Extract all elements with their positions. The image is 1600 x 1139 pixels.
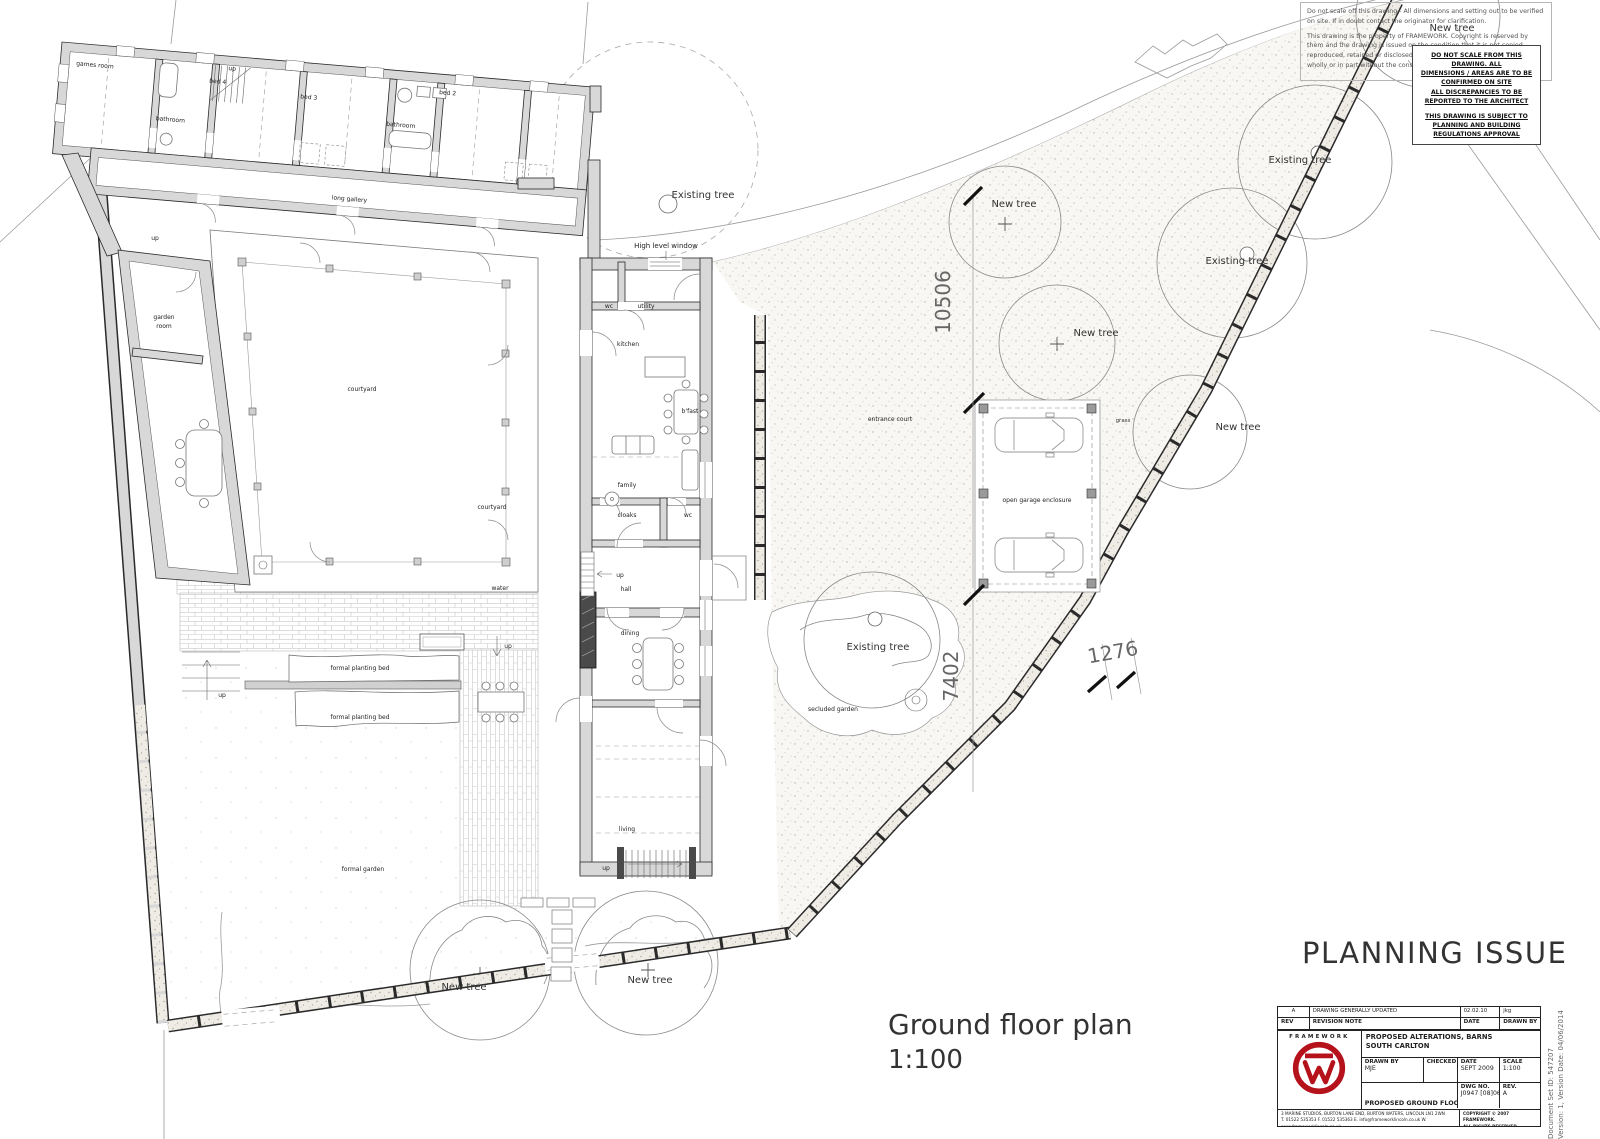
framework-logo-icon (1291, 1040, 1347, 1096)
rev-value: A (1503, 1090, 1537, 1097)
label-new-tree: New tree (991, 199, 1036, 210)
label-courtyard: courtyard (478, 504, 507, 511)
label-living: living (619, 826, 635, 833)
rev-header: REV (1278, 1018, 1310, 1029)
label-bed3: bed 3 (300, 93, 318, 101)
label-up: up (616, 572, 624, 579)
document-version: Version: 1, Version Date: 04/06/2014 (1556, 1010, 1566, 1139)
label-new-tree: New tree (627, 975, 672, 986)
label-kitchen: kitchen (617, 341, 639, 348)
label-dining: dining (621, 630, 640, 637)
label-family: family (618, 482, 637, 489)
warning-line: ALL DISCREPANCIES TO BE REPORTED TO THE … (1417, 88, 1536, 106)
document-set-id: Document Set ID: 547207 (1546, 1010, 1556, 1139)
project-title-line1: PROPOSED ALTERATIONS, BARNS (1366, 1033, 1536, 1042)
by-header: DRAWN BY (1500, 1018, 1540, 1029)
label-formal-planting-bed: formal planting bed (330, 714, 389, 721)
label-high-level-window: High level window (634, 242, 698, 250)
label-new-tree: New tree (441, 982, 486, 993)
label-utility: utility (637, 303, 655, 310)
label-grass: grass (1116, 418, 1131, 424)
label-entrance-court: entrance court (868, 416, 913, 423)
drawing-caption: Ground floor plan 1:100 (888, 1008, 1133, 1075)
date-value: SEPT 2009 (1461, 1065, 1496, 1072)
label-garden-room: room (156, 323, 172, 330)
drawn-by-value: MJE (1365, 1065, 1420, 1072)
drawing-title: PROPOSED GROUND FLOOR PLAN (1365, 1099, 1458, 1107)
address-line2: T. 01522 535353 F. 01522 535363 E. info@… (1281, 1117, 1456, 1126)
scale-value: 1:100 (1503, 1065, 1537, 1072)
copyright-line2: ALL RIGHTS RESERVED. (1463, 1124, 1537, 1126)
label-bed2: bed 2 (439, 89, 457, 97)
rev-entry-by: jkg (1500, 1007, 1540, 1017)
label-formal-garden: formal garden (342, 866, 385, 873)
label-up: up (218, 692, 226, 699)
dim-7402: 7402 (939, 651, 963, 702)
label-bed4: bed 4 (209, 78, 227, 86)
warning-line: DO NOT SCALE FROM THIS DRAWING. ALL (1417, 51, 1536, 69)
warning-line: DIMENSIONS / AREAS ARE TO BE CONFIRMED O… (1417, 69, 1536, 87)
house-furniture (605, 357, 708, 690)
label-open-garage: open garage enclosure (1002, 497, 1071, 504)
label-cloaks: cloaks (618, 512, 637, 519)
main-house (556, 251, 746, 879)
label-formal-planting-bed: formal planting bed (330, 665, 389, 672)
warning-line: THIS DRAWING IS SUBJECT TO (1417, 112, 1536, 121)
courtyard (210, 230, 538, 592)
label-up: up (602, 865, 610, 872)
checked-label: CHECKED (1427, 1059, 1454, 1065)
label-courtyard: courtyard (348, 386, 377, 393)
barn-wing: games room up bed 4 bathroom bed 3 bathr… (47, 41, 595, 254)
planning-issue-stamp: PLANNING ISSUE (1302, 936, 1567, 970)
label-bfast: b'fast (682, 408, 699, 415)
framework-logo: FRAMEWORK (1278, 1031, 1362, 1109)
label-up: up (151, 235, 159, 242)
dwg-no-value: J0947 [08]06 (1461, 1090, 1496, 1097)
label-hall: hall (621, 586, 632, 593)
label-water: water (491, 585, 509, 592)
dim-10506: 10506 (931, 270, 955, 334)
rev-entry-date: 02.02.10 (1461, 1007, 1501, 1017)
label-wc: wc (605, 303, 613, 310)
dim-1276: 1276 (1086, 636, 1140, 668)
caption-title: Ground floor plan (888, 1008, 1133, 1041)
label-wc: wc (684, 512, 692, 519)
rev-entry-rev: A (1278, 1007, 1310, 1017)
date-header: DATE (1461, 1018, 1501, 1029)
hall-stairs (581, 552, 612, 596)
caption-scale: 1:100 (888, 1045, 1133, 1075)
project-title-line2: SOUTH CARLTON (1366, 1042, 1536, 1051)
note-paragraph: Do not scale off this drawing - All dime… (1307, 7, 1545, 27)
label-new-tree: New tree (1215, 422, 1260, 433)
title-block: A DRAWING GENERALLY UPDATED 02.02.10 jkg… (1277, 1006, 1541, 1127)
label-new-tree: New tree (1073, 328, 1118, 339)
copyright-line1: COPYRIGHT © 2007 FRAMEWORK. (1463, 1111, 1537, 1124)
drawing-sheet: games room up bed 4 bathroom bed 3 bathr… (0, 0, 1600, 1139)
label-up: up (228, 65, 236, 73)
label-existing-tree: Existing tree (847, 642, 910, 653)
label-existing-tree: Existing tree (672, 190, 735, 201)
document-meta: Document Set ID: 547207 Version: 1, Vers… (1546, 1010, 1566, 1139)
note-header: REVISION NOTE (1310, 1018, 1461, 1029)
label-secluded-garden: secluded garden (808, 706, 858, 713)
rev-entry-note: DRAWING GENERALLY UPDATED (1310, 1007, 1461, 1017)
label-existing-tree: Existing tree (1269, 155, 1332, 166)
warning-box: DO NOT SCALE FROM THIS DRAWING. ALL DIME… (1412, 45, 1541, 145)
warning-line: PLANNING AND BUILDING REGULATIONS APPROV… (1417, 121, 1536, 139)
label-up: up (504, 643, 512, 650)
label-garden-room: garden (153, 314, 174, 321)
label-existing-tree: Existing tree (1206, 256, 1269, 267)
